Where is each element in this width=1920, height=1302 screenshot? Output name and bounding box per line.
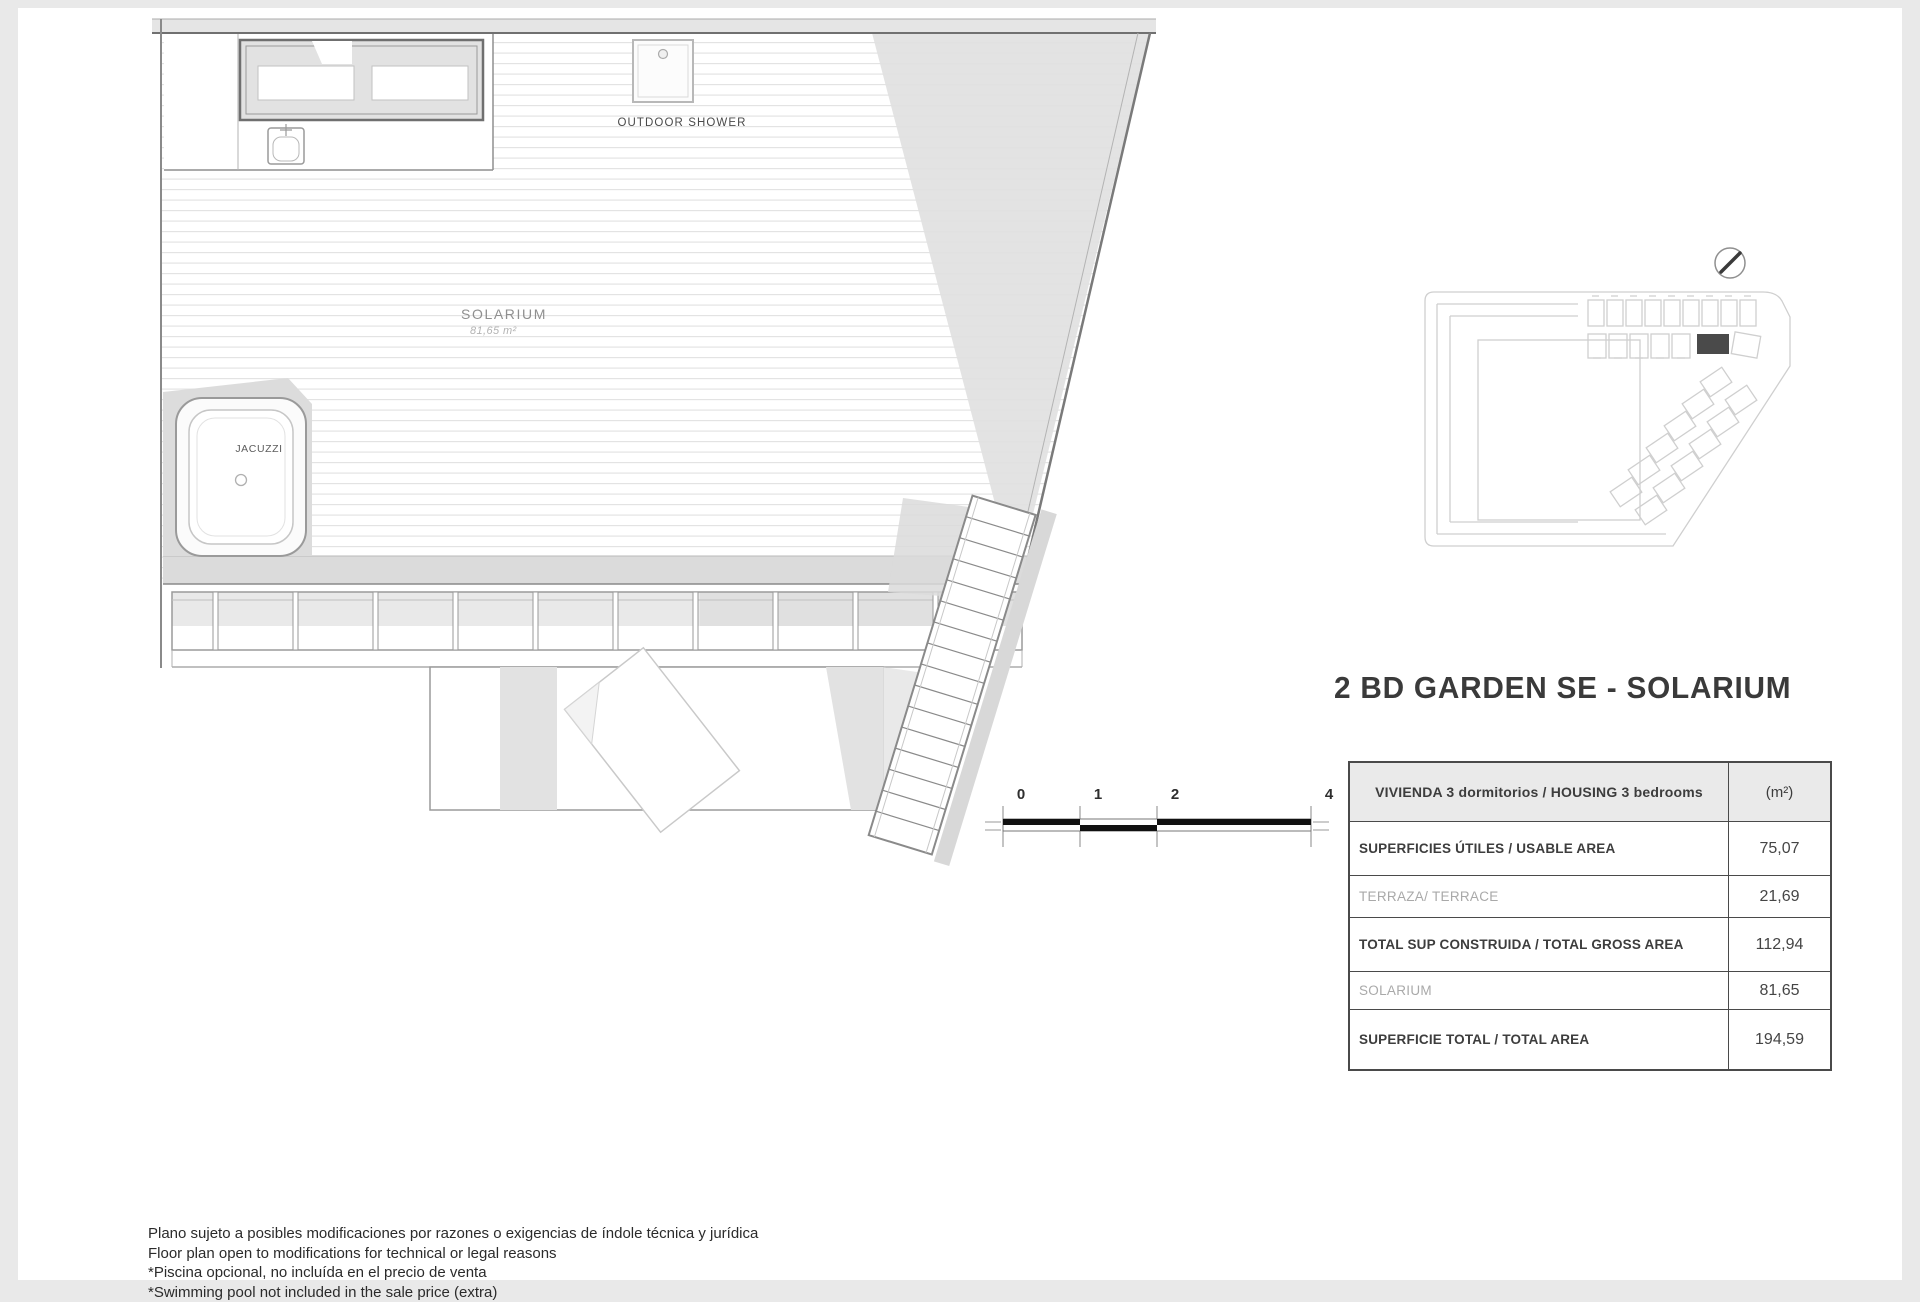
outdoor-shower — [633, 40, 693, 102]
table-header-row: VIVIENDA 3 dormitorios / HOUSING 3 bedro… — [1350, 763, 1830, 821]
table-row: SUPERFICIE TOTAL / TOTAL AREA 194,59 — [1350, 1009, 1830, 1069]
page-title: 2 BD GARDEN SE - SOLARIUM — [1334, 670, 1791, 706]
table-row: TERRAZA/ TERRACE 21,69 — [1350, 875, 1830, 917]
jacuzzi-label: JACUZZI — [214, 443, 304, 455]
outdoor-shower-label: OUTDOOR SHOWER — [596, 117, 768, 129]
row-value: 112,94 — [1728, 918, 1830, 971]
highlighted-unit — [1697, 334, 1729, 354]
site-plan — [1425, 248, 1790, 546]
row-value: 81,65 — [1728, 972, 1830, 1009]
scale-tick-0: 0 — [1009, 786, 1033, 803]
table-row: TOTAL SUP CONSTRUIDA / TOTAL GROSS AREA … — [1350, 917, 1830, 971]
shower-drain-icon — [659, 50, 668, 59]
row-label: SOLARIUM — [1350, 972, 1728, 1009]
row-label: TERRAZA/ TERRACE — [1350, 876, 1728, 917]
disclaimer-line: *Swimming pool not included in the sale … — [148, 1283, 758, 1302]
table-row: SOLARIUM 81,65 — [1350, 971, 1830, 1009]
row-label: SUPERFICIE TOTAL / TOTAL AREA — [1350, 1010, 1728, 1069]
disclaimer-line: Floor plan open to modifications for tec… — [148, 1244, 758, 1264]
floor-plan-drawing — [18, 8, 1902, 1280]
louver-railing — [172, 592, 1022, 667]
table-row: SUPERFICIES ÚTILES / USABLE AREA 75,07 — [1350, 821, 1830, 875]
scale-tick-1: 1 — [1086, 786, 1110, 803]
row-label: TOTAL SUP CONSTRUIDA / TOTAL GROSS AREA — [1350, 918, 1728, 971]
row-value: 21,69 — [1728, 876, 1830, 917]
unit-row-upper — [1588, 296, 1756, 326]
legal-disclaimer: Plano sujeto a posibles modificaciones p… — [148, 1224, 758, 1302]
table-header-unit: (m²) — [1728, 763, 1830, 821]
unit-row-lower — [1588, 332, 1761, 358]
row-label: SUPERFICIES ÚTILES / USABLE AREA — [1350, 822, 1728, 875]
solarium-area-label: 81,65 m² — [470, 325, 517, 337]
area-table: VIVIENDA 3 dormitorios / HOUSING 3 bedro… — [1348, 761, 1832, 1071]
brochure-page: SOLARIUM 81,65 m² JACUZZI OUTDOOR SHOWER… — [18, 8, 1902, 1280]
scale-tick-4: 4 — [1317, 786, 1341, 803]
pergola-counter — [240, 40, 483, 120]
row-value: 75,07 — [1728, 822, 1830, 875]
solarium-label: SOLARIUM — [428, 306, 580, 322]
north-arrow-icon — [1715, 248, 1745, 278]
row-value: 194,59 — [1728, 1010, 1830, 1069]
roof-room — [164, 33, 493, 170]
table-header-label: VIVIENDA 3 dormitorios / HOUSING 3 bedro… — [1350, 763, 1728, 821]
scale-bar — [985, 806, 1329, 847]
sink-icon — [268, 124, 304, 164]
unit-cascade — [1610, 367, 1757, 524]
disclaimer-line: Plano sujeto a posibles modificaciones p… — [148, 1224, 758, 1244]
scale-tick-2: 2 — [1163, 786, 1187, 803]
jacuzzi — [163, 378, 312, 556]
